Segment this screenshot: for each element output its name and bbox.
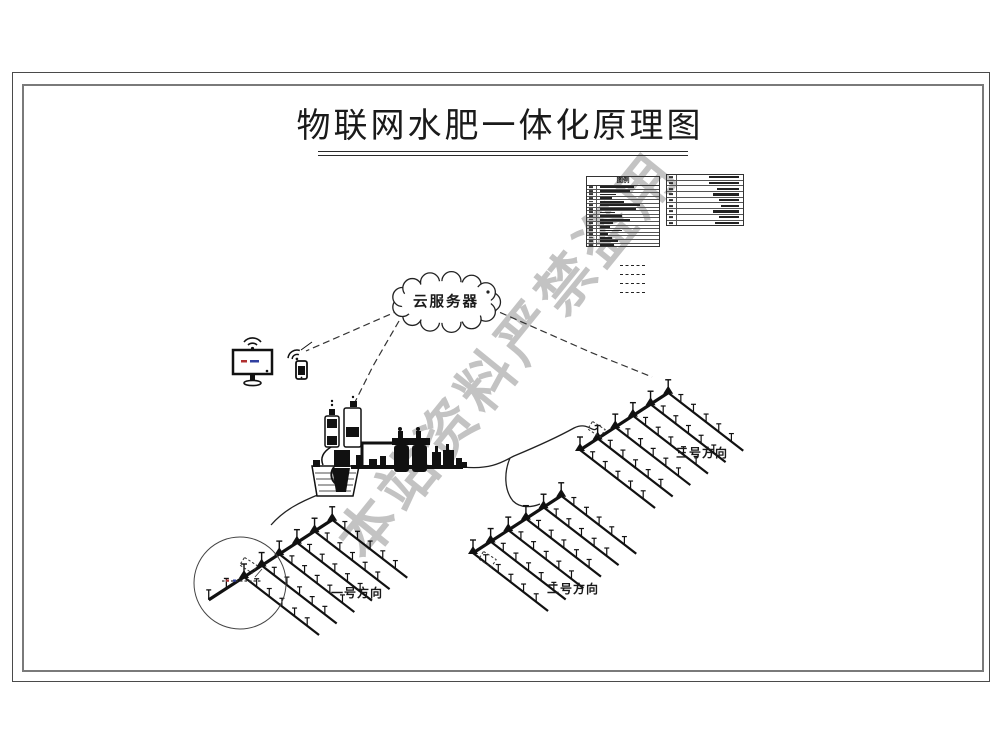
legend-row-text (600, 197, 612, 199)
wifi-icon (248, 343, 257, 345)
callout-blue-tick (233, 580, 236, 582)
legend-row-symbol (667, 209, 677, 214)
legend-row-text (719, 216, 739, 218)
legend-row (667, 220, 743, 226)
legend-row-text (600, 201, 624, 203)
legend-row-symbol (587, 226, 597, 229)
legend-row-symbol (587, 211, 597, 214)
legend-row-symbol (667, 192, 677, 197)
legend-row-text (600, 240, 618, 242)
antenna-dot (331, 404, 333, 406)
power-dot (266, 370, 269, 373)
legend-row-text (709, 176, 739, 178)
legend-row-symbol (587, 190, 597, 193)
legend-row-symbol (667, 181, 677, 186)
legend-row-text (600, 190, 630, 192)
tank-cap (350, 401, 357, 407)
sand-filter (412, 445, 427, 472)
detail-callout (194, 537, 286, 629)
cloud-server-label: 云服务器 (413, 291, 479, 312)
valve (369, 459, 377, 468)
legend-row-text (600, 208, 636, 210)
legend-row (587, 243, 659, 247)
legend-row-symbol (667, 221, 677, 226)
screen-mark-blue (250, 360, 259, 363)
legend-row-text (600, 194, 616, 196)
field-1-label: 一号方向 (331, 584, 383, 601)
filter-stem (416, 431, 421, 439)
legend-row-text (600, 219, 630, 221)
legend-rows (587, 186, 659, 246)
pipe-to-field1 (271, 494, 320, 525)
legend-row-symbol (667, 203, 677, 208)
legend-row-text (600, 230, 622, 232)
pipe-to-field3 (463, 426, 597, 468)
title-underline (318, 151, 688, 156)
legend-row-text (709, 182, 739, 184)
irrigation-fields (206, 380, 743, 635)
tank-cap (329, 409, 335, 415)
legend-row-text (713, 210, 739, 212)
legend-rows (667, 175, 743, 225)
antenna-dot (331, 400, 333, 402)
legend-row-symbol (587, 204, 597, 207)
cloud-dot (486, 290, 489, 293)
legend-row-symbol (587, 233, 597, 236)
filter-manifold (392, 438, 430, 445)
legend-row-text (715, 222, 739, 224)
phone-screen (298, 366, 305, 375)
legend-row-symbol (587, 222, 597, 225)
legend-dash-sample (620, 265, 645, 266)
tank-inlet-elbow (313, 460, 320, 467)
drawing-page: 物联网水肥一体化原理图 本站资料严禁盗用 图例 (0, 0, 1000, 750)
field-3-label: 三号方向 (676, 444, 728, 461)
callout-red-tick (226, 580, 229, 582)
field-grid-1 (206, 507, 407, 635)
filter-cap (416, 427, 420, 431)
legend-row-text (721, 205, 739, 207)
legend-row-symbol (587, 236, 597, 239)
screen-mark-red (241, 360, 247, 363)
tank-detail (346, 427, 359, 437)
legend-row-text (600, 204, 640, 206)
monitor-base (244, 380, 261, 385)
legend-row-symbol (667, 198, 677, 203)
legend-row-symbol (587, 197, 597, 200)
legend-table-main: 图例 (586, 176, 660, 247)
valve (443, 450, 454, 468)
legend-row-symbol (587, 240, 597, 243)
legend-row-symbol (587, 208, 597, 211)
legend-row-symbol (587, 193, 597, 196)
legend-row-text (600, 233, 608, 235)
legend-row-symbol (587, 229, 597, 232)
legend-row-text (600, 237, 612, 239)
legend-row-symbol (667, 215, 677, 220)
signal-stroke (301, 342, 312, 350)
legend-row-text (600, 212, 615, 214)
legend-row-symbol (587, 244, 597, 247)
legend-row-symbol (587, 218, 597, 221)
pump-station (312, 396, 467, 496)
pipe-to-field2 (506, 458, 540, 507)
valve (380, 456, 386, 468)
legend-row-text (600, 215, 622, 217)
legend-row-text (600, 222, 613, 224)
smartphone-icon (286, 342, 312, 379)
link-cloud-to-field3 (490, 308, 652, 377)
legend-dash-sample (620, 292, 645, 293)
legend-row-text (600, 244, 614, 246)
sand-filter (394, 445, 409, 472)
legend-dash-sample (620, 283, 645, 284)
valve (432, 452, 441, 468)
wifi-icon (244, 338, 261, 342)
legend-row-text (717, 188, 739, 190)
valve (356, 455, 363, 468)
stem (435, 446, 438, 453)
legend-dash-sample (620, 274, 645, 275)
tank-detail (327, 436, 337, 445)
filter-cap (398, 427, 402, 431)
callout-circle (194, 537, 286, 629)
legend-table-secondary (666, 174, 744, 226)
legend-row-symbol (667, 175, 677, 180)
pump-head (334, 450, 350, 467)
legend-row-symbol (667, 186, 677, 191)
legend-row-symbol (587, 215, 597, 218)
outlet-elbow (461, 462, 467, 468)
field-2-label: 二号方向 (547, 580, 599, 597)
tank-detail (327, 419, 337, 428)
legend-row-symbol (587, 186, 597, 189)
stem (446, 444, 449, 451)
legend-row-text (600, 226, 610, 228)
legend-row-text (713, 193, 739, 195)
antenna-dot (352, 396, 354, 398)
legend-row-text (600, 186, 634, 188)
legend-row-symbol (587, 200, 597, 203)
legend-row-text (719, 199, 739, 201)
dosing-tube (322, 447, 331, 465)
filter-stem (398, 431, 403, 439)
monitor-icon (233, 338, 272, 386)
home-button (301, 377, 303, 379)
link-cloud-to-station (353, 321, 399, 406)
legend-title: 图例 (587, 177, 659, 186)
page-title: 物联网水肥一体化原理图 (297, 98, 704, 147)
